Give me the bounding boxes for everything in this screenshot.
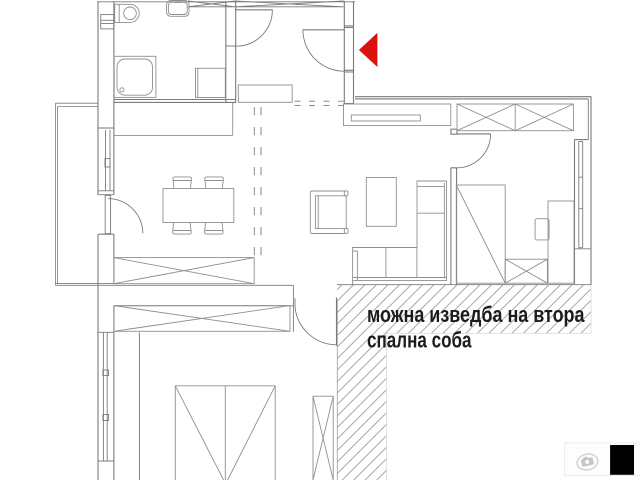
- svg-text:можна изведба на втора: можна изведба на втора: [367, 302, 585, 327]
- svg-text:спална соба: спална соба: [367, 328, 472, 353]
